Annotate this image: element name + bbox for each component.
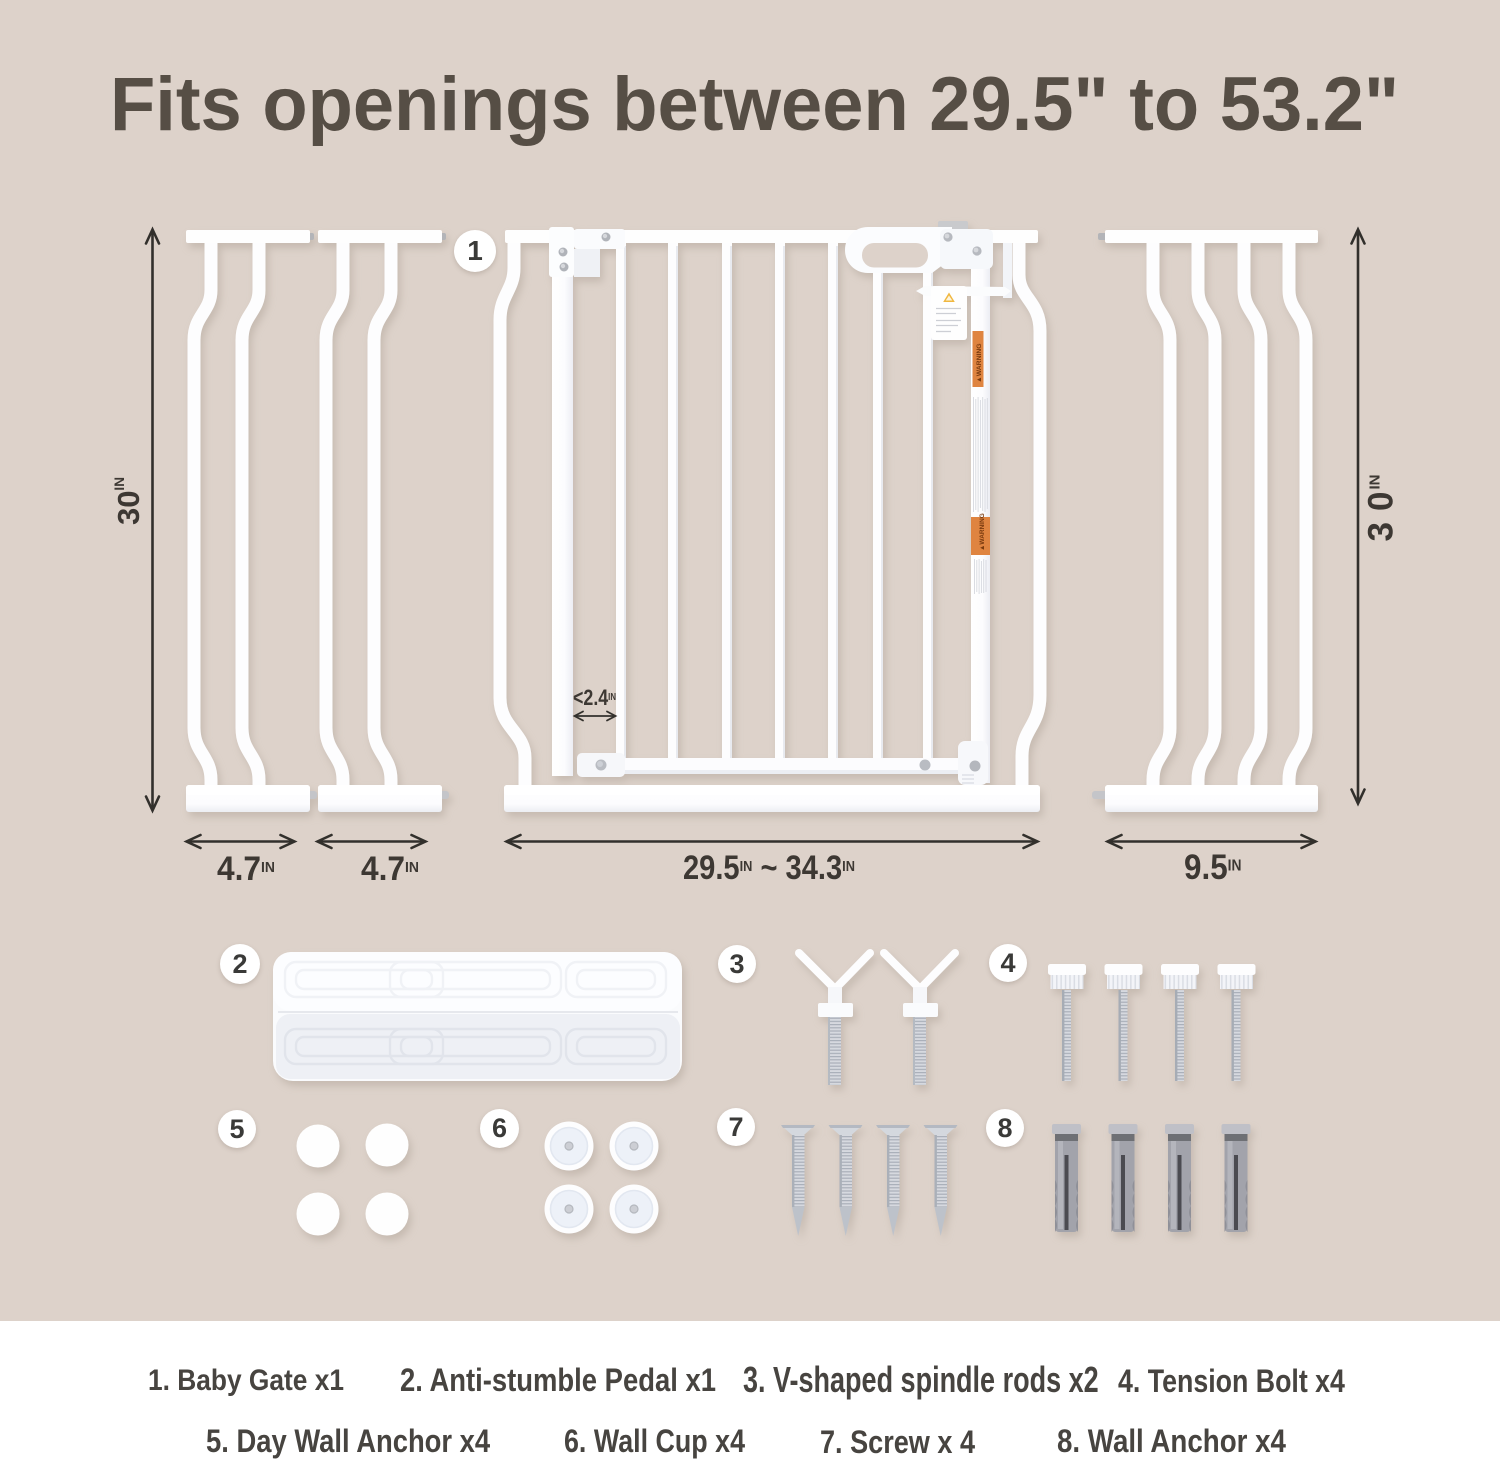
svg-text:30IN: 30IN	[111, 477, 146, 525]
svg-text:▲WARNING: ▲WARNING	[979, 513, 986, 551]
svg-text:30IN: 30IN	[1362, 475, 1401, 542]
svg-text:▲WARNING: ▲WARNING	[976, 343, 983, 383]
